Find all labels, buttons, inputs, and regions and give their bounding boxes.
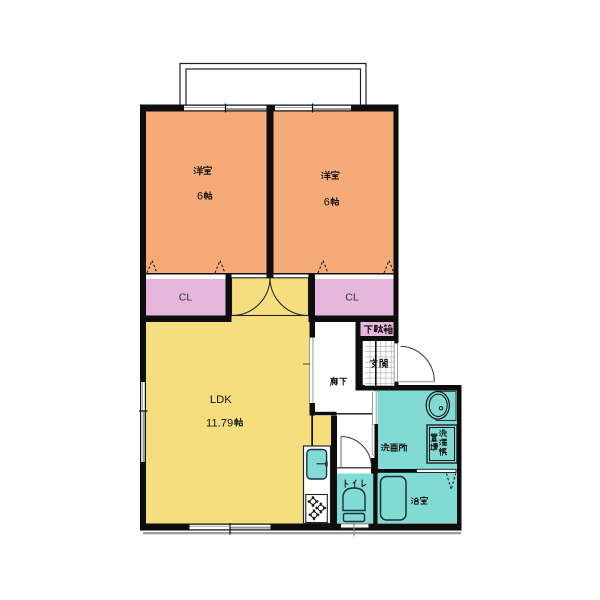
svg-text:11.79: 11.79 [206, 417, 233, 429]
svg-text:6: 6 [324, 196, 330, 208]
svg-text:6: 6 [197, 190, 203, 202]
svg-text:CL: CL [345, 291, 359, 303]
svg-text:CL: CL [179, 291, 193, 303]
svg-text:LDK: LDK [210, 394, 232, 406]
